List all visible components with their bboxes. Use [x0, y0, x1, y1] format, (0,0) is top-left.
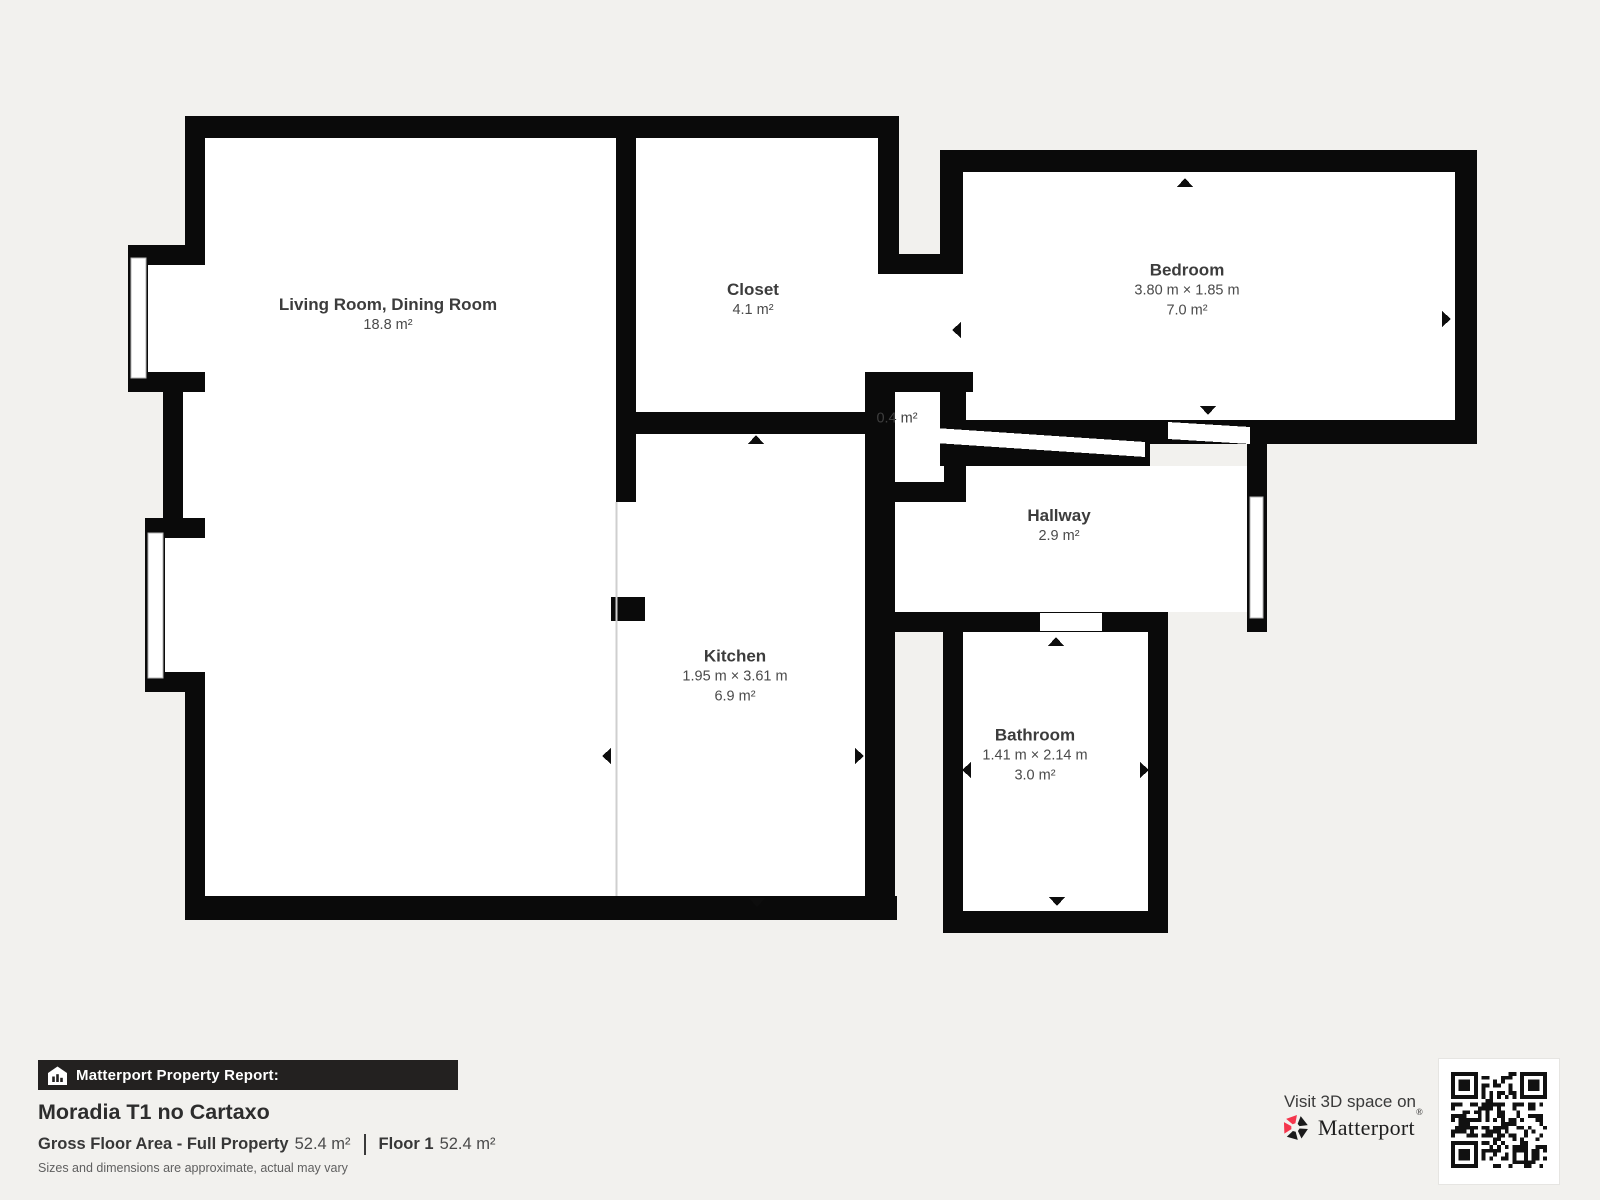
room-area: 0.4 m²: [876, 409, 917, 428]
visit-3d-text: Visit 3D space on: [1284, 1092, 1416, 1112]
room-area: 4.1 m²: [727, 302, 779, 321]
living-bay2-floor: [165, 538, 205, 672]
property-report-icon: [48, 1066, 67, 1085]
living-bay1-floor: [148, 265, 205, 372]
window-living-bay2: [148, 533, 163, 678]
property-name: Moradia T1 no Cartaxo: [38, 1100, 270, 1125]
label-nook: 0.4 m²: [876, 409, 917, 428]
living-mid-floor: [183, 392, 205, 518]
gross-area-label: Gross Floor Area - Full Property: [38, 1135, 289, 1154]
room-name: Kitchen: [682, 646, 787, 668]
label-bedroom: Bedroom 3.80 m × 1.85 m 7.0 m²: [1134, 260, 1239, 321]
room-name: Living Room, Dining Room: [279, 294, 497, 316]
floor-area-summary: Gross Floor Area - Full Property 52.4 m²…: [38, 1134, 496, 1155]
room-area: 7.0 m²: [1134, 301, 1239, 320]
room-dimensions: 1.95 m × 3.61 m: [682, 668, 787, 687]
room-name: Hallway: [1027, 505, 1090, 527]
label-living-room: Living Room, Dining Room 18.8 m²: [279, 294, 497, 336]
room-area: 6.9 m²: [682, 687, 787, 706]
matterport-wordmark: Matterport®: [1318, 1115, 1422, 1141]
gross-area-value: 52.4 m²: [295, 1135, 351, 1154]
room-area: 3.0 m²: [982, 766, 1087, 785]
disclaimer-text: Sizes and dimensions are approximate, ac…: [38, 1161, 348, 1175]
divider: [364, 1134, 366, 1155]
door-bathroom: [1040, 613, 1102, 631]
closet-floor: [636, 138, 878, 412]
matterport-floorplan-report: Living Room, Dining Room 18.8 m² Closet …: [0, 0, 1600, 1200]
label-kitchen: Kitchen 1.95 m × 3.61 m 6.9 m²: [682, 646, 787, 707]
closet-bedroom-passage: [878, 274, 963, 380]
room-area: 18.8 m²: [279, 317, 497, 336]
floor-label: Floor 1: [379, 1135, 434, 1154]
floor-plan: [0, 0, 1600, 1000]
label-bathroom: Bathroom 1.41 m × 2.14 m 3.0 m²: [982, 725, 1087, 786]
living-room-floor: [205, 138, 616, 896]
room-dimensions: 3.80 m × 1.85 m: [1134, 282, 1239, 301]
room-name: Closet: [727, 279, 779, 301]
window-living-bay1: [131, 258, 146, 378]
label-closet: Closet 4.1 m²: [727, 279, 779, 321]
label-hallway: Hallway 2.9 m²: [1027, 505, 1090, 547]
matterport-link[interactable]: Matterport®: [1282, 1114, 1422, 1141]
matterport-logo-icon: [1282, 1114, 1309, 1141]
floor-value: 52.4 m²: [440, 1135, 496, 1154]
report-title-bar: Matterport Property Report:: [38, 1060, 458, 1090]
qr-code[interactable]: [1439, 1059, 1559, 1184]
qr-code-pattern: [1451, 1072, 1547, 1168]
room-name: Bedroom: [1134, 260, 1239, 282]
report-bar-label: Matterport Property Report:: [76, 1067, 279, 1084]
room-dimensions: 1.41 m × 2.14 m: [982, 747, 1087, 766]
trademark-symbol: ®: [1416, 1107, 1423, 1117]
room-area: 2.9 m²: [1027, 528, 1090, 547]
window-hallway-right: [1250, 497, 1263, 618]
room-name: Bathroom: [982, 725, 1087, 747]
